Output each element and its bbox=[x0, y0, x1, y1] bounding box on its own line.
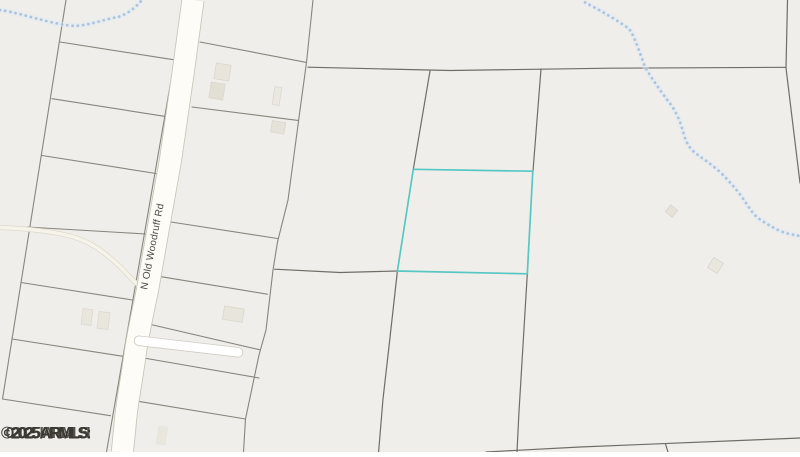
svg-text:02025!ARML5I: 02025!ARML5I bbox=[6, 425, 91, 442]
